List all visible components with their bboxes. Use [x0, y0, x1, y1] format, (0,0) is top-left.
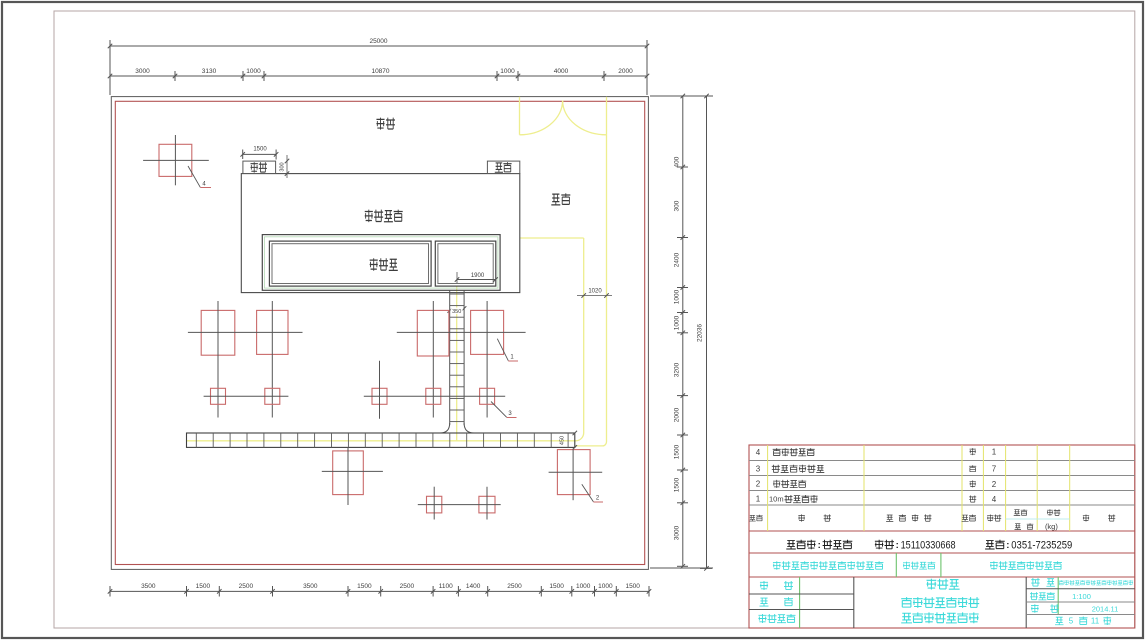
svg-text:4: 4 [756, 448, 761, 457]
svg-text:1900: 1900 [471, 273, 485, 279]
svg-text:4000: 4000 [554, 68, 569, 75]
svg-text::: : [1006, 540, 1009, 551]
svg-text:2500: 2500 [239, 583, 254, 590]
svg-text:4: 4 [202, 182, 206, 188]
svg-text:2: 2 [596, 496, 600, 502]
svg-text:3: 3 [756, 465, 761, 474]
svg-text:2500: 2500 [507, 583, 522, 590]
svg-text:25000: 25000 [369, 38, 387, 45]
svg-text:1500: 1500 [674, 477, 681, 492]
svg-text:2: 2 [992, 480, 997, 489]
svg-text:1020: 1020 [588, 289, 602, 295]
svg-text:3130: 3130 [202, 68, 217, 75]
svg-text:3000: 3000 [674, 525, 681, 540]
svg-text:0351-7235259: 0351-7235259 [1011, 539, 1072, 551]
svg-text:300: 300 [674, 200, 681, 211]
svg-text::: : [896, 540, 899, 551]
svg-text:1500: 1500 [196, 583, 211, 590]
svg-text:5: 5 [1069, 617, 1074, 626]
svg-text:1000: 1000 [576, 583, 591, 590]
svg-text:2000: 2000 [674, 407, 681, 422]
svg-text:1: 1 [510, 355, 514, 361]
svg-text:2000: 2000 [618, 68, 633, 75]
svg-text:3500: 3500 [303, 583, 318, 590]
svg-text:1500: 1500 [253, 147, 267, 153]
svg-text:3: 3 [508, 411, 512, 417]
svg-text:1400: 1400 [466, 583, 481, 590]
svg-text:3500: 3500 [141, 583, 156, 590]
svg-text:15110330668: 15110330668 [901, 539, 956, 551]
svg-text:1000: 1000 [246, 68, 261, 75]
svg-text:1: 1 [992, 448, 997, 457]
svg-text:350: 350 [452, 309, 461, 315]
svg-text:(kg): (kg) [1045, 522, 1058, 531]
svg-text:7: 7 [992, 465, 997, 474]
svg-text:11: 11 [1091, 617, 1100, 626]
svg-text:2: 2 [756, 480, 761, 489]
svg-text:1: 1 [756, 495, 761, 504]
svg-text:10870: 10870 [371, 68, 389, 75]
svg-text:4: 4 [992, 495, 997, 504]
svg-text:450: 450 [560, 436, 566, 445]
svg-text:3000: 3000 [135, 68, 150, 75]
svg-text:1500: 1500 [625, 583, 640, 590]
svg-text:1000: 1000 [598, 583, 613, 590]
svg-text:1000: 1000 [674, 289, 681, 304]
svg-text:1000: 1000 [674, 315, 681, 330]
svg-text:3200: 3200 [674, 362, 681, 377]
svg-text:2400: 2400 [674, 252, 681, 267]
svg-text:2014.11: 2014.11 [1092, 604, 1119, 613]
svg-text:300: 300 [280, 162, 286, 171]
svg-text:2500: 2500 [400, 583, 415, 590]
svg-text:1100: 1100 [439, 583, 453, 590]
svg-text:22036: 22036 [697, 324, 704, 342]
svg-text:10m: 10m [769, 495, 784, 504]
svg-text:1000: 1000 [500, 68, 515, 75]
svg-text::: : [818, 540, 821, 551]
svg-text:400: 400 [674, 156, 681, 167]
svg-text:1500: 1500 [549, 583, 564, 590]
svg-text:1500: 1500 [357, 583, 372, 590]
svg-text:1:100: 1:100 [1072, 592, 1091, 601]
svg-text:1500: 1500 [674, 444, 681, 459]
